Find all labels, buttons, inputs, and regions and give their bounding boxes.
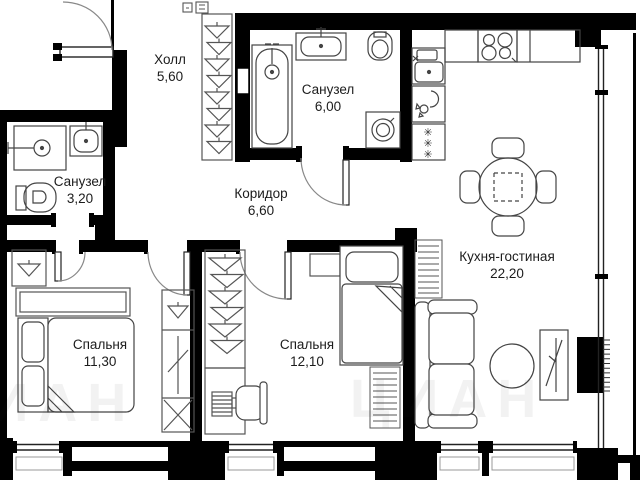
pillow (346, 252, 398, 282)
hanger-icon (168, 302, 188, 318)
chair-top (492, 138, 524, 158)
wall-top (235, 13, 636, 30)
bathtub (252, 44, 292, 148)
wardrobe-bedroom-1 (162, 290, 194, 432)
pillar-bottom-1 (168, 441, 225, 480)
washing-machine (366, 112, 400, 148)
room-name: Санузел (54, 174, 107, 191)
bathroom-large-door (296, 146, 349, 205)
room-area: 22,20 (459, 266, 555, 283)
room-name: Санузел (302, 82, 355, 99)
room-label-bathroom-large: Санузел 6,00 (302, 82, 355, 115)
room-area: 3,20 (54, 191, 107, 208)
desk-chair (236, 382, 267, 424)
room-area: 12,10 (280, 354, 334, 371)
chair-bottom (492, 216, 524, 236)
wall-left (0, 110, 7, 480)
dishwasher (412, 86, 445, 122)
room-name: Холл (154, 52, 186, 69)
kitchen-counter (445, 30, 580, 62)
entry-shelf-icons (183, 2, 208, 13)
wardrobe-bedroom-2 (205, 250, 245, 368)
toilet-small-bathroom (16, 183, 56, 212)
pillow (22, 366, 44, 406)
room-label-corridor: Коридор 6,60 (234, 186, 287, 219)
room-area: 6,00 (302, 99, 355, 116)
tv-stand (540, 330, 568, 400)
shelf-unit-living (415, 240, 442, 298)
bedroom1-door-left (52, 240, 85, 281)
room-label-kitchen-living: Кухня-гостиная 22,20 (459, 249, 555, 282)
bedroom1-door-right (144, 240, 191, 295)
room-label-hall: Холл 5,60 (154, 52, 186, 85)
bedroom1-dresser (16, 288, 130, 316)
room-name: Коридор (234, 186, 287, 203)
bedroom2-door (236, 240, 291, 299)
duct-shaft (237, 68, 249, 94)
mattress (342, 284, 402, 363)
bathroom-small-sink (70, 122, 102, 156)
hanger-icons (205, 26, 231, 154)
wall-hall-bathroom (235, 30, 250, 162)
shelf-unit-bedroom2 (370, 367, 400, 428)
room-name: Спальня (280, 337, 334, 354)
sofa (415, 300, 477, 428)
room-area: 11,30 (73, 354, 127, 371)
wall-bathroom-kitchen (400, 13, 412, 162)
mirror-icon (168, 336, 188, 394)
room-area: 5,60 (154, 69, 186, 86)
door-swing-arc (63, 2, 112, 50)
wall-bedroom-divider (190, 252, 202, 445)
room-label-bathroom-small: Санузел 3,20 (54, 174, 107, 207)
coffee-table (490, 344, 534, 388)
freezer-mark-icon: ✳ (423, 149, 432, 161)
kitchen-sink (412, 48, 445, 84)
hall-wardrobe (202, 14, 232, 160)
floor-plan: ✳ ✳ ✳ (0, 0, 640, 480)
bathroom-large-sink (296, 27, 346, 60)
wall-bedroom2-living (403, 240, 415, 447)
bedside-table (310, 254, 340, 276)
x-cabinet-icon (164, 400, 192, 430)
single-bed (340, 246, 403, 365)
dining-table (460, 138, 556, 236)
room-label-bedroom-2: Спальня 12,10 (280, 337, 334, 370)
stove (478, 30, 517, 62)
floor-plan-drawing: ✳ ✳ ✳ (0, 0, 640, 480)
table-top (479, 158, 537, 216)
room-name: Спальня (73, 337, 127, 354)
pillow (22, 322, 44, 362)
bathroom-small-door (51, 213, 94, 227)
room-label-bedroom-1: Спальня 11,30 (73, 337, 127, 370)
chair-right (536, 171, 556, 203)
entrance-door (53, 2, 113, 61)
fridge-freezer: ✳ ✳ ✳ (412, 124, 445, 161)
chair-left (460, 171, 480, 203)
pillar-bottom-2 (375, 441, 437, 480)
balcony-edge (633, 33, 636, 458)
shower (8, 126, 66, 170)
room-name: Кухня-гостиная (459, 249, 555, 266)
hanger-icon (18, 260, 40, 276)
hanger-icons (209, 258, 243, 354)
toilet-large-bathroom (368, 32, 392, 60)
bedroom1-closet (12, 250, 46, 286)
room-area: 6,60 (234, 203, 287, 220)
